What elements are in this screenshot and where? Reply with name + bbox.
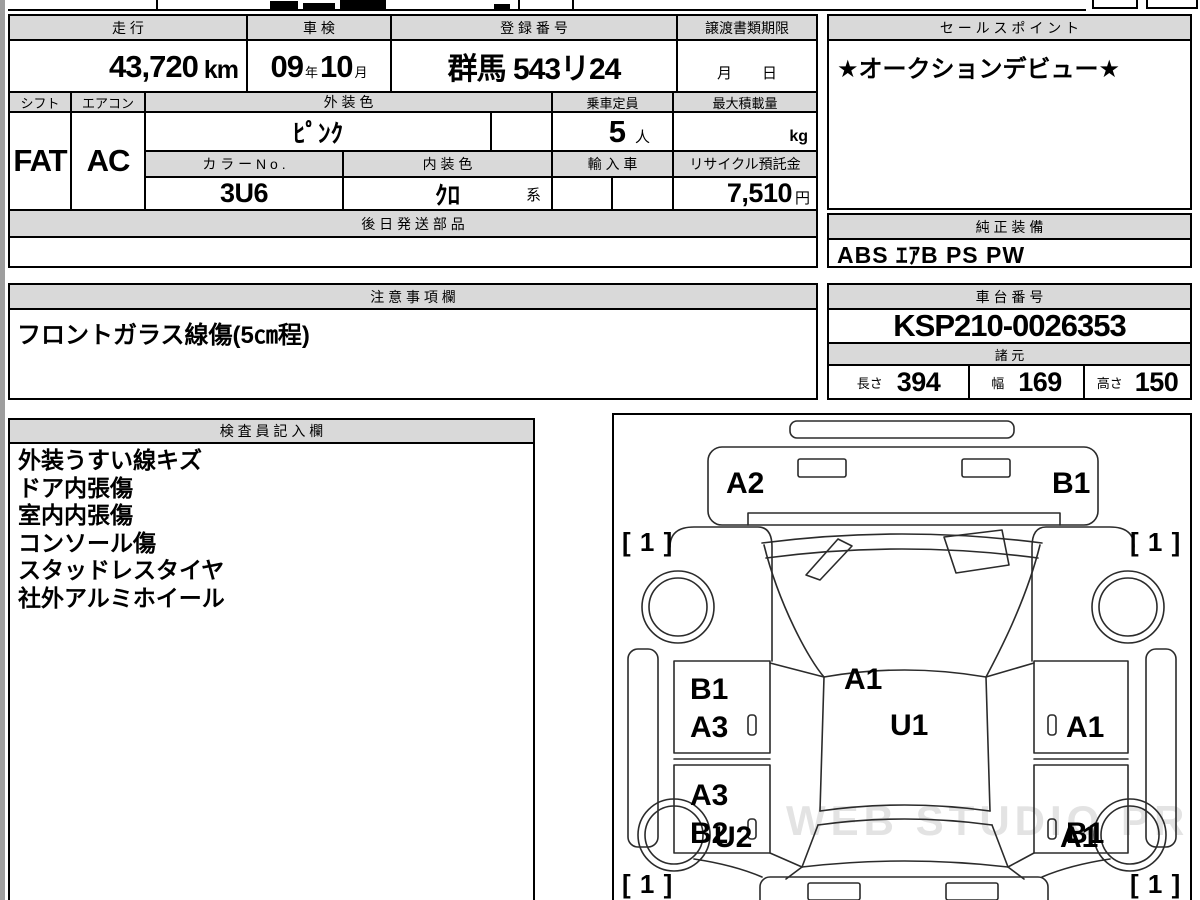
rear-quarter-right <box>1042 859 1110 877</box>
color-no-value: 3U6 <box>146 178 342 209</box>
tire-grade-front-right: [ 1 ] <box>1130 527 1181 557</box>
roof-side-right <box>986 677 990 811</box>
exterior-color-spare-cell <box>492 113 551 150</box>
inspection-month-unit: 月 <box>354 62 367 81</box>
caution-box: 注 意 事 項 欄 フロントガラス線傷(5㎝程) <box>8 283 818 400</box>
front-edge-strip <box>790 421 1014 438</box>
rear-quarter-left <box>694 859 762 877</box>
genuine-equipment-text: ABS ｴｱB PS PW <box>837 240 1025 266</box>
mileage-header: 走 行 <box>10 16 246 39</box>
shift-header: シフト <box>10 93 70 111</box>
chassis-value: KSP210-0026353 <box>829 310 1190 342</box>
cowl-arc-1 <box>762 534 1042 543</box>
spec-height-cell: 高さ 150 <box>1085 366 1190 398</box>
spec-height-value: 150 <box>1135 367 1179 398</box>
spec-width-cell: 幅 169 <box>970 366 1083 398</box>
genuine-equipment-value: ABS ｴｱB PS PW <box>829 240 1190 266</box>
caution-text: フロントガラス線傷(5㎝程) <box>17 315 310 350</box>
interior-color-suffix: 系 <box>526 184 541 205</box>
inspector-note-line: 室内内張傷 <box>18 502 133 530</box>
tire-grade-front-left: [ 1 ] <box>622 527 673 557</box>
car-top-view-diagram: A2 B1 [ 1 ] [ 1 ] A1 B1 A3 U1 A1 A3 B2 B… <box>614 415 1190 900</box>
wheel-front-right <box>1092 571 1164 643</box>
exterior-color-value: ﾋﾟﾝｸ <box>146 113 490 150</box>
capacity-value: 5 人 <box>553 113 672 150</box>
recycle-fee-unit: 円 <box>795 187 810 208</box>
inspection-header: 車 検 <box>248 16 390 39</box>
taillight-right <box>946 883 998 900</box>
damage-label-rear-quarter-right: A1 <box>1060 821 1098 854</box>
shift-value: FAT <box>10 113 70 209</box>
roof-rear-curve-1 <box>820 805 990 811</box>
cowl-arc-2 <box>766 549 1038 558</box>
sales-point-box: セ ー ル ス ポ イ ン ト ★オークションデビュー★ <box>827 14 1192 210</box>
sales-point-text: ★オークションデビュー★ <box>837 49 1120 84</box>
aircon-value: AC <box>72 113 144 209</box>
import-car-cell-2 <box>613 178 672 209</box>
door-handle-rear-right <box>1048 819 1056 839</box>
wheel-front-right-inner <box>1099 578 1157 636</box>
belt-line-front-right <box>986 663 1034 677</box>
spec-length-label: 長さ <box>857 373 883 392</box>
interior-color-value: ｸﾛ 系 <box>344 178 551 209</box>
import-car-header: 輸 入 車 <box>553 152 672 176</box>
damage-label-rear-door-left-upper: A3 <box>690 779 728 812</box>
wheel-rear-right <box>1094 799 1166 871</box>
damage-label-hood: A1 <box>844 663 882 696</box>
caution-header: 注 意 事 項 欄 <box>10 285 816 308</box>
later-parts-header: 後 日 発 送 部 品 <box>10 211 816 236</box>
chassis-specs-box: 車 台 番 号 KSP210-0026353 諸 元 長さ 394 幅 169 … <box>827 283 1192 400</box>
inspector-note-line: スタッドレスタイヤ <box>18 557 224 585</box>
capacity-number: 5 <box>609 114 625 150</box>
import-car-cell-1 <box>553 178 611 209</box>
belt-line-rear-left <box>770 853 802 867</box>
registration-header: 登 録 番 号 <box>392 16 676 39</box>
chassis-number-text: KSP210-0026353 <box>893 310 1125 342</box>
color-no-header: カ ラ ー N o . <box>146 152 342 176</box>
auction-sheet: 走 行 車 検 登 録 番 号 譲渡書類期限 43,720 km 09 年 10… <box>0 0 1200 900</box>
door-handle-front-right <box>1048 715 1056 735</box>
damage-label-roof: U1 <box>890 709 928 742</box>
spec-width-label: 幅 <box>991 373 1004 392</box>
capacity-header: 乗車定員 <box>553 93 672 111</box>
registration-number: 群馬 543リ24 <box>448 44 621 88</box>
inspection-year: 09 <box>271 49 303 85</box>
later-parts-value <box>10 238 816 266</box>
transfer-deadline-header: 譲渡書類期限 <box>678 16 816 39</box>
max-load-unit: kg <box>789 128 808 146</box>
clipped-box <box>1146 0 1198 9</box>
shift-text: FAT <box>13 143 66 179</box>
recycle-fee-number: 7,510 <box>727 178 792 209</box>
headlight-left <box>798 459 846 477</box>
rear-window-bottom <box>802 861 1008 867</box>
genuine-equipment-box: 純 正 装 備 ABS ｴｱB PS PW <box>827 213 1192 268</box>
registration-value: 群馬 543リ24 <box>392 41 676 91</box>
roof-side-left <box>820 677 824 811</box>
spec-height-label: 高さ <box>1097 373 1123 392</box>
clipped-text-fragment <box>494 4 510 9</box>
specs-header: 諸 元 <box>829 344 1190 364</box>
color-no-text: 3U6 <box>220 178 268 209</box>
inspector-notes-box: 検 査 員 記 入 欄 外装うすい線キズ ドア内張傷 室内内張傷 コンソール傷 … <box>8 418 535 900</box>
inspector-notes-content: 外装うすい線キズ ドア内張傷 室内内張傷 コンソール傷 スタッドレスタイヤ 社外… <box>10 444 533 900</box>
max-load-value: kg <box>674 113 816 150</box>
clipped-text-fragment <box>270 1 298 9</box>
headlight-right <box>962 459 1010 477</box>
sales-point-header: セ ー ル ス ポ イ ン ト <box>829 16 1190 39</box>
caution-value: フロントガラス線傷(5㎝程) <box>10 310 816 398</box>
inspection-year-unit: 年 <box>305 62 318 81</box>
c-pillar-line-right <box>992 825 1008 867</box>
inspector-note-line: 外装うすい線キズ <box>18 447 202 475</box>
taillight-left <box>808 883 860 900</box>
wheel-front-left-inner <box>649 578 707 636</box>
inspector-note-line: ドア内張傷 <box>18 475 133 503</box>
damage-label-front-door-left-upper: B1 <box>690 673 728 706</box>
tire-grade-rear-right: [ 1 ] <box>1130 869 1181 899</box>
mileage-unit: km <box>204 56 238 85</box>
wiper-left <box>806 539 852 580</box>
damage-diagram-canvas: WEB STUDIO PRO <box>614 415 1190 900</box>
damage-label-front-bumper-right: B1 <box>1052 467 1090 500</box>
vehicle-data-table: 走 行 車 検 登 録 番 号 譲渡書類期限 43,720 km 09 年 10… <box>8 14 818 268</box>
roof-rear-curve-2 <box>818 819 992 825</box>
damage-label-front-door-right: A1 <box>1066 711 1104 744</box>
exterior-color-header: 外 装 色 <box>146 93 551 111</box>
recycle-fee-value: 7,510 円 <box>674 178 816 209</box>
sales-point-value: ★オークションデビュー★ <box>829 41 1190 208</box>
tire-grade-rear-left: [ 1 ] <box>622 869 673 899</box>
recycle-fee-header: リサイクル預託金 <box>674 152 816 176</box>
rear-bumper <box>760 877 1048 900</box>
spec-length-value: 394 <box>897 367 941 398</box>
scan-edge-strip <box>0 0 5 900</box>
inspection-value: 09 年 10 月 <box>248 41 390 91</box>
front-bumper-inner <box>748 513 1060 525</box>
max-load-header: 最大積載量 <box>674 93 816 111</box>
inspection-month: 10 <box>320 49 352 85</box>
mileage-value: 43,720 km <box>10 41 246 91</box>
transfer-deadline-value: 月 日 <box>678 41 816 91</box>
genuine-equipment-header: 純 正 装 備 <box>829 215 1190 238</box>
door-handle-front-left <box>748 715 756 735</box>
wheel-rear-right-inner <box>1101 806 1159 864</box>
inspector-note-line: コンソール傷 <box>18 530 156 558</box>
spec-length-cell: 長さ 394 <box>829 366 968 398</box>
clipped-text-fragment <box>303 3 335 9</box>
aircon-text: AC <box>87 143 130 179</box>
damage-label-front-door-left-lower: A3 <box>690 711 728 744</box>
aircon-header: エアコン <box>72 93 144 111</box>
capacity-unit: 人 <box>635 126 650 147</box>
mileage-number: 43,720 <box>109 49 198 85</box>
transfer-deadline-units: 月 日 <box>717 62 777 83</box>
clipped-box <box>1092 0 1138 9</box>
front-fender-left <box>670 527 772 661</box>
spec-width-value: 169 <box>1018 367 1062 398</box>
damage-label-front-bumper-left: A2 <box>726 467 764 500</box>
c-pillar-line-left <box>802 825 818 867</box>
exterior-color-text: ﾋﾟﾝｸ <box>293 114 343 150</box>
clipped-text-fragment <box>340 0 386 9</box>
interior-color-text: ｸﾛ <box>435 178 460 209</box>
inspector-note-line: 社外アルミホイール <box>18 585 225 613</box>
chassis-header: 車 台 番 号 <box>829 285 1190 308</box>
interior-color-header: 内 装 色 <box>344 152 551 176</box>
front-fender-right <box>1032 527 1134 661</box>
damage-diagram-box: WEB STUDIO PRO <box>612 413 1192 900</box>
inspector-notes-header: 検 査 員 記 入 欄 <box>10 420 533 442</box>
wheel-front-left <box>642 571 714 643</box>
damage-label-rear-quarter-left: U2 <box>714 821 752 854</box>
belt-line-rear-right <box>1008 853 1034 867</box>
